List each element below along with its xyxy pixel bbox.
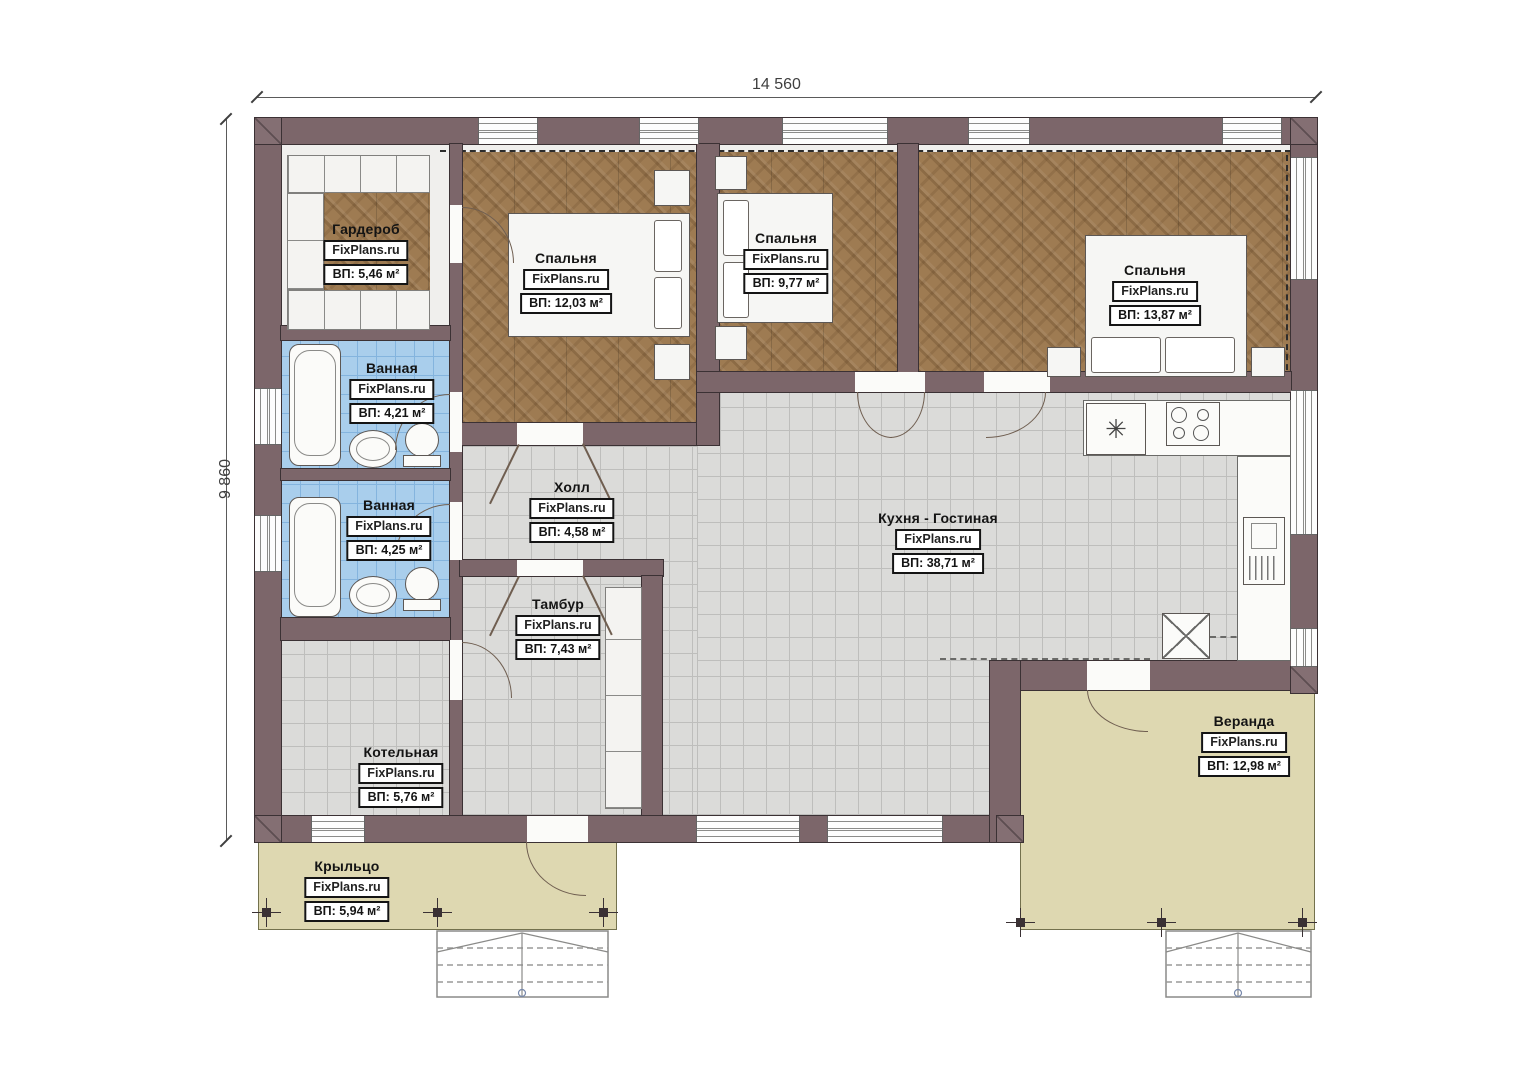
floor-plan: 14 560 9 860 bbox=[0, 0, 1528, 1080]
wall-bedroom2-bedroom3 bbox=[898, 144, 918, 372]
window bbox=[478, 118, 538, 144]
window bbox=[1222, 118, 1282, 144]
room-area: ВП: 9,77 м² bbox=[744, 273, 829, 294]
veranda-roof-dashed-line bbox=[940, 658, 1150, 660]
window bbox=[639, 118, 699, 144]
corner-brace bbox=[1291, 667, 1317, 693]
vestibule-closet bbox=[605, 587, 642, 809]
room-label-bathroom-1: Ванная FixPlans.ru ВП: 4,21 м² bbox=[349, 360, 434, 424]
door-opening-wardrobe bbox=[450, 205, 462, 263]
room-label-kitchen-living: Кухня - Гостиная FixPlans.ru ВП: 38,71 м… bbox=[878, 510, 998, 574]
room-label-hall: Холл FixPlans.ru ВП: 4,58 м² bbox=[529, 479, 614, 543]
wall-bath2-boiler bbox=[281, 618, 450, 640]
stove bbox=[1166, 402, 1220, 446]
door-opening-bedroom-2 bbox=[855, 372, 925, 392]
wardrobe-shelves-bottom bbox=[287, 290, 430, 330]
room-name: Веранда bbox=[1198, 713, 1290, 729]
brand-watermark: FixPlans.ru bbox=[1201, 732, 1286, 753]
window bbox=[1291, 157, 1317, 280]
corner-brace bbox=[255, 118, 281, 144]
brand-watermark: FixPlans.ru bbox=[743, 249, 828, 270]
window bbox=[782, 118, 888, 144]
fridge-vents bbox=[1249, 556, 1279, 580]
corner-brace bbox=[1291, 118, 1317, 144]
wall-kitchen-veranda-side bbox=[990, 661, 1020, 842]
fridge-freezer bbox=[1251, 523, 1277, 549]
room-name: Спальня bbox=[743, 230, 828, 246]
pillow bbox=[654, 220, 682, 272]
brand-watermark: FixPlans.ru bbox=[358, 763, 443, 784]
door-opening-bedroom-3 bbox=[984, 372, 1050, 392]
nightstand bbox=[654, 170, 690, 206]
wardrobe-shelves-top bbox=[287, 155, 430, 193]
veranda-stairs bbox=[1165, 930, 1312, 1005]
room-name: Спальня bbox=[1109, 262, 1201, 278]
room-area: ВП: 5,94 м² bbox=[305, 901, 390, 922]
nightstand bbox=[1251, 347, 1285, 377]
room-area: ВП: 12,03 м² bbox=[520, 293, 612, 314]
door-opening-bathroom-1 bbox=[450, 392, 462, 452]
brand-watermark: FixPlans.ru bbox=[323, 240, 408, 261]
corner-brace bbox=[997, 816, 1023, 842]
burner-icon bbox=[1197, 409, 1209, 421]
room-label-bedroom-1: Спальня FixPlans.ru ВП: 12,03 м² bbox=[520, 250, 612, 314]
sink-icon: ✳ bbox=[1086, 414, 1146, 445]
column-marker bbox=[599, 908, 608, 917]
porch-stairs bbox=[436, 930, 609, 1005]
burner-icon bbox=[1173, 427, 1185, 439]
brand-watermark: FixPlans.ru bbox=[895, 529, 980, 550]
room-area: ВП: 5,76 м² bbox=[359, 787, 444, 808]
window bbox=[255, 515, 281, 572]
door-opening-porch bbox=[527, 816, 588, 842]
window bbox=[968, 118, 1030, 144]
brand-watermark: FixPlans.ru bbox=[523, 269, 608, 290]
nightstand bbox=[715, 156, 747, 190]
bathtub bbox=[289, 497, 341, 617]
wall-bath1-bath2 bbox=[281, 469, 450, 480]
door-opening-bedroom-1 bbox=[517, 423, 583, 445]
column-marker bbox=[262, 908, 271, 917]
room-area: ВП: 38,71 м² bbox=[892, 553, 984, 574]
toilet-tank bbox=[403, 599, 441, 611]
bathtub bbox=[289, 344, 341, 466]
pillow bbox=[1165, 337, 1235, 373]
window bbox=[827, 816, 943, 842]
room-name: Спальня bbox=[520, 250, 612, 266]
nightstand bbox=[715, 326, 747, 360]
room-name: Ванная bbox=[349, 360, 434, 376]
door-opening-veranda bbox=[1087, 661, 1150, 690]
pillow bbox=[1091, 337, 1161, 373]
window bbox=[696, 816, 800, 842]
window bbox=[255, 388, 281, 445]
kitchen-island-hatch bbox=[1162, 613, 1210, 659]
room-area: ВП: 4,21 м² bbox=[350, 403, 435, 424]
bathtub-inner bbox=[294, 503, 336, 607]
bathtub-inner bbox=[294, 350, 336, 456]
brand-watermark: FixPlans.ru bbox=[529, 498, 614, 519]
sink-basin-inner bbox=[356, 437, 390, 461]
wardrobe-shelves-left bbox=[287, 193, 324, 290]
burner-icon bbox=[1171, 407, 1187, 423]
room-area: ВП: 13,87 м² bbox=[1109, 305, 1201, 326]
room-label-porch: Крыльцо FixPlans.ru ВП: 5,94 м² bbox=[304, 858, 389, 922]
room-name: Холл bbox=[529, 479, 614, 495]
window bbox=[311, 816, 365, 842]
window bbox=[1291, 390, 1317, 535]
room-name: Гардероб bbox=[323, 221, 408, 237]
sink-basin bbox=[349, 576, 397, 614]
brand-watermark: FixPlans.ru bbox=[1112, 281, 1197, 302]
room-label-bedroom-2: Спальня FixPlans.ru ВП: 9,77 м² bbox=[743, 230, 828, 294]
room-area: ВП: 5,46 м² bbox=[324, 264, 409, 285]
column-marker bbox=[1157, 918, 1166, 927]
wall-outer-left bbox=[255, 118, 281, 842]
sink-basin-inner bbox=[356, 583, 390, 607]
room-name: Ванная bbox=[346, 497, 431, 513]
brand-watermark: FixPlans.ru bbox=[304, 877, 389, 898]
room-area: ВП: 7,43 м² bbox=[516, 639, 601, 660]
room-name: Котельная bbox=[358, 744, 443, 760]
room-name: Кухня - Гостиная bbox=[878, 510, 998, 526]
toilet bbox=[405, 567, 439, 601]
room-label-bathroom-2: Ванная FixPlans.ru ВП: 4,25 м² bbox=[346, 497, 431, 561]
pillow bbox=[654, 277, 682, 329]
room-label-vestibule: Тамбур FixPlans.ru ВП: 7,43 м² bbox=[515, 596, 600, 660]
room-area: ВП: 4,25 м² bbox=[347, 540, 432, 561]
nightstand bbox=[1047, 347, 1081, 377]
column-marker bbox=[1016, 918, 1025, 927]
room-label-bedroom-3: Спальня FixPlans.ru ВП: 13,87 м² bbox=[1109, 262, 1201, 326]
brand-watermark: FixPlans.ru bbox=[515, 615, 600, 636]
burner-icon bbox=[1193, 425, 1209, 441]
roof-overhang-dashed-line bbox=[1286, 155, 1288, 390]
dimension-height-label: 9 860 bbox=[217, 439, 235, 519]
toilet-tank bbox=[403, 455, 441, 467]
sink-basin bbox=[349, 430, 397, 468]
door-opening-vestibule bbox=[517, 560, 583, 576]
room-area: ВП: 4,58 м² bbox=[530, 522, 615, 543]
brand-watermark: FixPlans.ru bbox=[349, 379, 434, 400]
room-name: Тамбур bbox=[515, 596, 600, 612]
room-label-wardrobe: Гардероб FixPlans.ru ВП: 5,46 м² bbox=[323, 221, 408, 285]
fridge bbox=[1243, 517, 1285, 585]
door-opening-bathroom-2 bbox=[450, 502, 462, 560]
wall-vestibule-kitchen bbox=[642, 576, 662, 815]
brand-watermark: FixPlans.ru bbox=[346, 516, 431, 537]
door-opening-boiler bbox=[450, 640, 462, 700]
kitchen-living-floor-lower bbox=[697, 661, 990, 815]
nightstand bbox=[654, 344, 690, 380]
column-marker bbox=[1298, 918, 1307, 927]
room-area: ВП: 12,98 м² bbox=[1198, 756, 1290, 777]
room-name: Крыльцо bbox=[304, 858, 389, 874]
corner-brace bbox=[255, 816, 281, 842]
column-marker bbox=[433, 908, 442, 917]
room-label-boiler: Котельная FixPlans.ru ВП: 5,76 м² bbox=[358, 744, 443, 808]
dimension-line-top bbox=[257, 97, 1316, 98]
room-label-veranda: Веранда FixPlans.ru ВП: 12,98 м² bbox=[1198, 713, 1290, 777]
roof-overhang-dashed-line bbox=[440, 150, 1291, 152]
window bbox=[1291, 628, 1317, 667]
dimension-width-label: 14 560 bbox=[752, 76, 801, 94]
